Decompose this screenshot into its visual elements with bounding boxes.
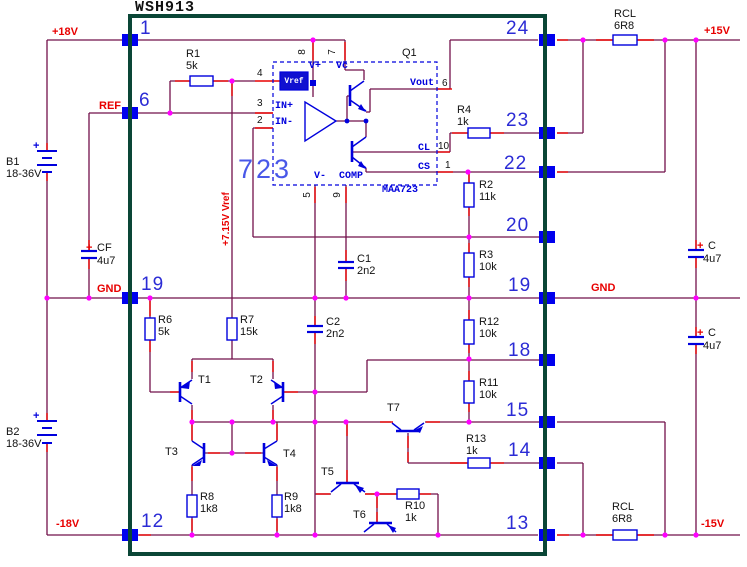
transistor-t2-label: T2 [250,375,263,386]
res-r9-ref: R9 [284,492,298,503]
res-rcl-bot-body [613,530,637,540]
ic-pin-8: 8 [298,49,308,55]
junction-dot [580,532,585,537]
junction-dot [86,295,91,300]
battery-b2-ref: B2 [6,427,19,438]
res-r4-ref: R4 [457,105,471,116]
res-rcl-top-value: 6R8 [614,21,634,32]
res-r13-value: 1k [466,446,478,457]
res-r1-ref: R1 [186,49,200,60]
res-rcl-top-body [613,35,637,45]
res-r6-value: 5k [158,327,170,338]
res-rcl-bot-ref: RCL [612,502,634,513]
ic-label-cs: CS [418,163,430,173]
res-rcl-bot-value: 6R8 [612,514,632,525]
net-label-vref-7v15: +7.15V Vref [222,174,232,264]
pin-number-14: 14 [508,441,531,460]
res-r2-ref: R2 [479,180,493,191]
ic-label-vout: Vout [410,79,434,89]
pin-number-24: 24 [506,19,529,38]
cap-c2-value: 2n2 [326,329,344,340]
junction-dot [580,37,585,42]
pin-number-12: 12 [141,512,164,531]
res-rcl-top-ref: RCL [614,9,636,20]
res-r13-ref: R13 [466,434,486,445]
res-r7-value: 15k [240,327,258,338]
pin-number-22: 22 [504,154,527,173]
cap-cf-value: 4u7 [97,256,115,267]
ic-label-vplus: V+ [309,62,321,72]
res-r7-ref: R7 [240,315,254,326]
ic-part-number: MAA723 [382,186,418,196]
pin-number-6: 6 [139,91,151,110]
cap-c2-ref: C2 [326,317,340,328]
res-r12-value: 10k [479,329,497,340]
net-label-minus15v: -15V [701,519,724,530]
res-r12-ref: R12 [479,317,499,328]
cap-c-top-plus: + [697,241,703,252]
pin-number-19-left: 19 [141,275,164,294]
pin-number-23: 23 [506,111,529,130]
res-r6-ref: R6 [158,315,172,326]
ic-pin-5: 5 [303,192,313,198]
ic-label-vc: Vc [336,62,348,72]
cap-c1-ref: C1 [357,254,371,265]
res-r1-value: 5k [186,61,198,72]
junction-dot [662,37,667,42]
ic-label-comp: COMP [339,172,363,182]
transistor-t7-label: T7 [387,403,400,414]
cap-c1-value: 2n2 [357,266,375,277]
ic-pin-10: 10 [438,142,449,152]
battery-b2-value: 18-36V [6,439,41,450]
ic-723-big-label: 723 [238,154,292,185]
junction-dot [662,532,667,537]
ic-pin-9: 9 [333,192,343,198]
ic-label-in-minus: IN- [275,118,293,128]
battery-b1-ref: B1 [6,157,19,168]
ic-pin-7: 7 [328,49,338,55]
transistor-t6-label: T6 [353,510,366,521]
battery-b1-value: 18-36V [6,169,41,180]
pin-number-18: 18 [508,341,531,360]
junction-dot [693,532,698,537]
ic-pin-1: 1 [445,161,451,171]
cap-c-top-ref: C [708,241,716,252]
pin-number-19-right: 19 [508,276,531,295]
cap-c-top-value: 4u7 [703,254,721,265]
junction-dot [693,295,698,300]
transistor-t3-label: T3 [165,447,178,458]
res-r2-value: 11k [479,192,496,203]
res-r10-value: 1k [405,513,417,524]
transistor-t4-label: T4 [283,449,296,460]
res-r8-value: 1k8 [200,504,218,515]
cap-cf-plus: + [86,243,92,254]
battery-b1-plus: + [33,141,39,152]
ic-pin-4: 4 [257,69,263,79]
ic-label-cl: CL [418,144,430,154]
res-r11-ref: R11 [479,378,498,389]
ic-pin-2: 2 [257,116,263,126]
net-label-minus18v: -18V [56,519,79,530]
pin-number-20: 20 [506,216,529,235]
res-r8-ref: R8 [200,492,214,503]
res-r4-value: 1k [457,117,469,128]
net-label-gnd-right: GND [591,283,615,294]
ic-label-vminus: V- [314,172,326,182]
res-r3-ref: R3 [479,250,493,261]
cap-c-bot-value: 4u7 [703,341,721,352]
net-label-plus15v: +15V [704,26,730,37]
ic-q1-label: Q1 [402,48,417,59]
pin-number-1: 1 [140,19,152,38]
ic-vref-box-label: Vref [280,77,308,86]
cap-cf-ref: CF [97,243,112,254]
ic-pin-3: 3 [257,99,263,109]
ic-label-in-plus: IN+ [275,102,293,112]
cap-c-bot-plus: + [697,328,703,339]
net-label-plus18v: +18V [52,27,78,38]
res-r3-value: 10k [479,262,497,273]
net-label-ref: REF [99,101,121,112]
transistor-t1-label: T1 [198,375,211,386]
res-r10-ref: R10 [405,501,425,512]
res-r11-value: 10k [479,390,497,401]
ic-pin-6: 6 [442,79,448,89]
res-r9-value: 1k8 [284,504,302,515]
net-label-gnd-left: GND [97,284,121,295]
junction-dot [693,37,698,42]
wsh913-module-outline [128,14,547,556]
schematic-page: WSH913 +18V REF GND -18V +15V GND -15V +… [0,0,747,567]
transistor-t5-label: T5 [321,467,334,478]
pin-number-15: 15 [506,401,529,420]
pin-number-13: 13 [506,514,529,533]
module-title: WSH913 [135,0,195,15]
cap-c-bot-ref: C [708,328,716,339]
junction-dot [44,295,49,300]
battery-b2-plus: + [33,411,39,422]
